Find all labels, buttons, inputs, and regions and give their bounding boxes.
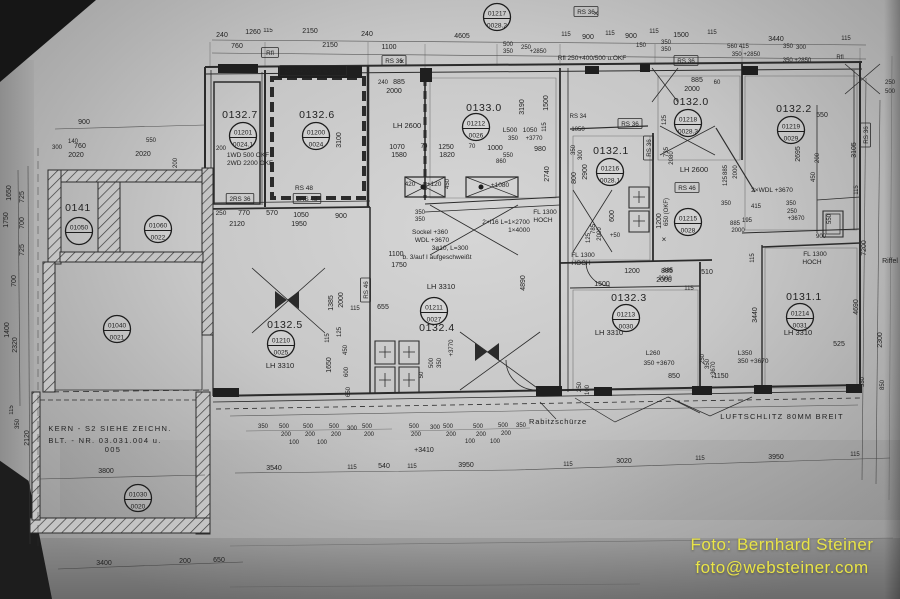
dimension-label: 1500 xyxy=(543,95,550,111)
boxed-label-text: RS 36 xyxy=(577,9,595,16)
dimension-label: 115 xyxy=(407,464,417,470)
position-circle: 010600022 xyxy=(145,216,172,243)
dimension-label: 885 xyxy=(730,221,741,227)
dimension-label: 350 +3670 xyxy=(738,358,769,365)
position-circle: 012010024.1 xyxy=(230,123,257,150)
room-number: 0133.0 xyxy=(466,102,502,114)
position-circle-top: 01214 xyxy=(791,311,810,318)
dimension-label: RS 48 xyxy=(295,185,313,192)
dimension-label: 3440 xyxy=(752,307,759,323)
dimension-label: +3670 xyxy=(788,216,806,222)
dimension-label: 240 xyxy=(216,32,228,39)
dimension-label: +3410 xyxy=(414,447,434,454)
dimension-label: 2000 xyxy=(597,227,603,241)
dimension-label: 70 xyxy=(421,144,428,150)
dimension-label: 115 xyxy=(707,30,717,36)
boxed-labels: RS 36RS 36RS 36RS 36RS 36RS 36RS 46RS 46… xyxy=(226,7,870,303)
dimension-label: 2120 xyxy=(24,430,31,446)
position-circle: 012140031 xyxy=(787,304,814,331)
dimension-label: 450 xyxy=(343,344,349,355)
dimension-label: L260 xyxy=(646,350,661,357)
position-circle-top: 01215 xyxy=(679,216,698,223)
dimension-label: Rfl xyxy=(836,55,843,61)
boxed-label-text: 2RS 48 xyxy=(296,196,318,203)
position-circle-bottom: 0024.1 xyxy=(233,142,254,149)
position-circle-top: 01218 xyxy=(679,117,698,124)
dimension-label: 1650 xyxy=(6,185,13,201)
boxed-label: RS 36 xyxy=(861,123,871,147)
dimension-label: 900 xyxy=(582,34,594,41)
dimension-label: 2020 xyxy=(68,152,84,159)
room-number: 0132.2 xyxy=(776,103,812,115)
room-number: 0132.1 xyxy=(593,145,629,157)
dimension-label: 240 xyxy=(361,31,373,38)
dimension-label: 885 xyxy=(661,268,673,275)
dimension-label: Rfl 250+400/500 u.OKF xyxy=(558,55,627,62)
dimension-label: KERN - S2 SIEHE ZEICHN. xyxy=(48,424,171,433)
dimension-label: 2120 xyxy=(229,221,245,228)
dimension-label: 350 xyxy=(721,201,732,207)
room-number: 0141 xyxy=(65,202,91,214)
dimension-label: LH 2600 xyxy=(393,121,421,130)
dimension-label: +3670 xyxy=(711,361,717,379)
dimension-label: 115 xyxy=(542,122,548,132)
dimension-label: 200 xyxy=(411,432,422,438)
dimension-label: 005 xyxy=(105,445,121,454)
dimension-label: 3105 xyxy=(851,142,858,158)
dimension-label: 1750 xyxy=(391,262,407,269)
room-number: 0131.1 xyxy=(786,291,822,303)
dimension-label: LUFTSCHLITZ 80MM BREIT xyxy=(720,412,844,421)
dimension-label: 1200 xyxy=(656,213,663,229)
dimension-label: 115 xyxy=(649,29,659,35)
boxed-label: 2RS 48 xyxy=(293,194,321,204)
dimension-label: 200 xyxy=(173,157,179,168)
dimension-label: 195 xyxy=(742,218,753,224)
boxed-label-text: RS 36 xyxy=(863,126,870,144)
dimension-label: 500 xyxy=(303,424,314,430)
dimension-label: 200 xyxy=(179,558,191,565)
boxed-label-text: 250×400/500 u.OKF xyxy=(285,68,342,75)
dimension-label: 2WD 2200 OKF xyxy=(227,160,273,167)
dimension-label: 350 +2850 xyxy=(732,52,761,58)
dimension-label: RS 34 xyxy=(570,114,587,120)
dimension-label: 540 xyxy=(378,463,390,470)
dimension-label: 1650 xyxy=(326,357,333,373)
position-circle-bottom: 0030 xyxy=(619,324,634,331)
dimension-label: 1×4000 xyxy=(508,227,530,234)
dimension-label: 3440 xyxy=(768,36,784,43)
dimension-label: 1100 xyxy=(388,251,403,258)
dimension-label: +3770 xyxy=(449,339,455,357)
dimension-label: 3950 xyxy=(458,462,474,469)
dimension-label: 3100 xyxy=(336,132,343,148)
dimension-label: FL 1300 xyxy=(571,252,595,259)
position-circle-bottom: 0028.2 xyxy=(487,23,508,30)
dimension-label: 1820 xyxy=(439,152,455,159)
boxed-label-text: 2RS 36 xyxy=(229,196,251,203)
position-circle-top: 01212 xyxy=(467,121,486,128)
dimension-label: 1950 xyxy=(291,221,307,228)
dimension-label: 500 xyxy=(429,357,435,368)
dimension-label: 980 xyxy=(534,146,546,153)
dimension-label: 100 xyxy=(585,384,591,395)
dimension-label: 350 xyxy=(571,144,577,155)
boxed-label-text: RS 36 xyxy=(621,121,639,128)
dimension-label: 650 xyxy=(213,557,225,564)
position-circle-top: 01030 xyxy=(129,492,148,499)
dimension-label: 60 xyxy=(714,80,721,86)
dimension-label: 300 xyxy=(796,45,807,51)
boxed-label-text: RS 46 xyxy=(678,185,696,192)
dimension-label: 115 xyxy=(9,405,15,415)
dimension-label: 3950 xyxy=(768,454,784,461)
dimension-label: 115 xyxy=(854,185,860,195)
dimension-label: 2320 xyxy=(12,337,19,353)
dimension-label: 650 xyxy=(346,386,352,397)
dimension-label: 1070 xyxy=(389,144,405,151)
dimension-label: 350 +2850 xyxy=(783,58,812,64)
dimension-label: 1500 xyxy=(594,281,610,288)
room-number: 0132.0 xyxy=(673,96,709,108)
dimension-label: 3190 xyxy=(519,99,526,115)
position-circle: 012160028.1 xyxy=(597,159,624,186)
photo-credit-line2: foto@websteiner.com xyxy=(664,556,900,579)
position-circle-top: 01213 xyxy=(617,312,636,319)
dimension-label: 200 xyxy=(216,146,227,152)
position-circle-bottom: 0021 xyxy=(110,335,125,342)
position-circle: 012170028.2 xyxy=(484,4,511,31)
dimension-label: 500 xyxy=(409,424,420,430)
dimension-label: 500 xyxy=(498,423,509,429)
dimension-label: +3770 xyxy=(526,136,544,142)
dimension-label: 200 xyxy=(476,432,487,438)
dimension-label: 725 xyxy=(19,244,26,256)
dimension-label: 900 xyxy=(816,234,827,240)
dimension-label: 200 xyxy=(501,431,512,437)
dimension-label: 860 xyxy=(496,159,507,165)
left-block-walls xyxy=(30,148,213,546)
dimension-label: 115 xyxy=(750,253,756,263)
dimension-label: 885 xyxy=(723,164,729,175)
position-circle: 012190029 xyxy=(778,117,805,144)
dimension-label: 115 xyxy=(325,333,331,343)
dimension-label: HOCH xyxy=(533,217,552,224)
dimension-label: 2×I16 L=1×2700 xyxy=(482,219,530,226)
dimension-label: 1500 xyxy=(673,32,689,39)
position-circle-top: 01040 xyxy=(108,323,127,330)
dimension-label: 500 xyxy=(362,424,373,430)
dimension-label: 200 xyxy=(331,432,342,438)
dimension-label: BLT. - NR. 03.031.004 u. xyxy=(48,436,161,445)
dimension-label: 2000 xyxy=(731,228,745,234)
room-number-labels: 0132.70132.60133.00132.10132.00132.20132… xyxy=(65,96,822,334)
dimension-label: 650 (OKF) xyxy=(664,198,670,226)
dimension-label: 115 xyxy=(561,32,571,38)
position-circle-bottom: 0025 xyxy=(274,350,289,357)
position-circle: 010400021 xyxy=(104,316,131,343)
dimension-label: 560 415 xyxy=(727,44,749,50)
dimension-label: 350 xyxy=(786,201,797,207)
dimension-label: 2150 xyxy=(322,42,338,49)
dimension-label: 350 xyxy=(516,423,527,429)
dimension-label: 850 xyxy=(668,373,680,380)
dimension-label: Sockel +360 xyxy=(412,229,448,236)
dimension-label: +120 xyxy=(427,181,442,188)
dimension-label: 3540 xyxy=(266,465,282,472)
dimension-label: 115 xyxy=(695,456,705,462)
dimension-label: 500 xyxy=(329,424,340,430)
dimension-label: 250 xyxy=(885,80,896,86)
dimension-label: +2850 xyxy=(530,49,548,55)
dimension-label: FL 1300 xyxy=(533,209,557,216)
position-circle-top: 01201 xyxy=(234,130,253,137)
dimension-label: 770 xyxy=(238,210,250,217)
room-number: 0132.4 xyxy=(419,322,455,334)
dimension-label: 1385 xyxy=(328,295,335,311)
dimension-label: 350 xyxy=(783,44,794,50)
bowtie-symbols xyxy=(275,291,499,361)
boxed-label: RS 36 xyxy=(574,7,598,17)
position-circle-bottom: 0022 xyxy=(151,235,166,242)
dimension-label: 240 xyxy=(378,80,389,86)
dimension-label: 7200 xyxy=(861,240,868,256)
position-circle-top: 01210 xyxy=(272,338,291,345)
dimension-label: 115 xyxy=(347,465,357,471)
dimension-label: 4890 xyxy=(520,275,527,291)
dimension-label: 1050 xyxy=(571,127,585,133)
dimension-label: 2×WDL +3670 xyxy=(751,187,793,194)
dimension-label: 350 xyxy=(258,424,269,430)
dimension-label: 200 xyxy=(305,432,316,438)
photo-credit: Foto: Bernhard Steiner foto@websteiner.c… xyxy=(664,533,900,580)
dimension-label: 885 xyxy=(691,77,703,84)
dimension-label: 2695 xyxy=(795,146,802,162)
position-circle: 01050 xyxy=(66,218,93,245)
dimension-label: 115 xyxy=(350,306,360,312)
dimension-label: 3800 xyxy=(98,468,114,475)
dimension-label: 1250 xyxy=(438,144,454,151)
dimension-label: 2000 xyxy=(338,292,345,308)
position-circle: 010300020 xyxy=(125,485,152,512)
dimension-label: 570 xyxy=(266,210,278,217)
dimension-label: 450 xyxy=(811,171,817,182)
dimension-label: 550 xyxy=(827,213,833,224)
dimension-label: × xyxy=(662,235,667,244)
boxed-label: Rfl xyxy=(262,48,279,58)
position-circle-bottom: 0026 xyxy=(469,133,484,140)
boxed-label-text: RS 36 xyxy=(677,58,695,65)
dimension-label: 550 xyxy=(860,376,866,387)
dimension-label: 125 xyxy=(662,114,668,125)
dimension-label: 350 xyxy=(661,47,672,53)
position-circle-top: 01217 xyxy=(488,11,507,18)
dimension-label: 885 xyxy=(393,79,405,86)
dimension-label: 50 xyxy=(419,371,425,378)
dimension-label: b. 3/auf I aufgeschweißt xyxy=(402,254,471,261)
dimension-label: 500 xyxy=(885,89,896,95)
dimension-label: 415 xyxy=(751,204,762,210)
dimension-label: 510 xyxy=(701,269,713,276)
room-number: 0132.7 xyxy=(222,109,258,121)
dimension-label: 550 xyxy=(146,138,157,144)
dimension-label: LH 3310 xyxy=(427,282,455,291)
dimension-label: 550 xyxy=(816,112,828,119)
dimension-label: 350 xyxy=(508,136,519,142)
dimension-label: +50 xyxy=(610,233,621,239)
dimension-label: 2300 xyxy=(877,332,884,348)
position-circle: 012130030 xyxy=(613,305,640,332)
dimension-label: 1750 xyxy=(3,212,10,228)
dimension-label: 350 xyxy=(661,40,672,46)
dimension-label: 450 xyxy=(445,178,451,189)
boxed-label-text: RS 46 xyxy=(363,281,370,299)
position-circle-top: 01050 xyxy=(70,225,89,232)
position-circle-bottom: 0020 xyxy=(131,504,146,511)
dimension-label: 70 xyxy=(469,144,476,150)
dimension-label: LH 2600 xyxy=(680,165,708,174)
dimension-label: 1WD 500 OKF xyxy=(227,152,269,159)
dimension-label: FL 1300 xyxy=(803,251,827,258)
dimension-label: 200 xyxy=(364,432,375,438)
dimension-labels: 2401260115215024076021501100460511590011… xyxy=(3,9,898,567)
dimension-label: 125 xyxy=(337,326,343,337)
dimension-label: 3ø10, L=300 xyxy=(432,245,469,252)
dimension-label: 350 +3670 xyxy=(644,360,675,367)
dimension-label: 725 xyxy=(19,191,26,203)
position-circle: 012120026 xyxy=(463,114,490,141)
boxed-label-text: Rfl xyxy=(266,50,274,57)
dimension-label: 115 xyxy=(841,36,851,42)
dimension-label: 760 xyxy=(231,43,243,50)
dimension-label: 850 xyxy=(880,379,886,390)
dimension-label: 125 xyxy=(723,175,729,186)
position-circle-bottom: 0028.1 xyxy=(600,178,621,185)
dimension-label: 200 xyxy=(281,432,292,438)
dimension-label: 115 xyxy=(850,452,860,458)
position-circle-bottom: 0028 xyxy=(681,228,696,235)
dimension-label: 2000 xyxy=(733,165,739,179)
position-circle: 012000024 xyxy=(303,123,330,150)
dimension-label: 100 xyxy=(465,439,476,445)
room-number: 0132.5 xyxy=(267,319,303,331)
dimension-label: 2000 xyxy=(684,86,700,93)
position-circle-bottom: 0028.3 xyxy=(678,129,699,136)
boxed-label: RS 46 xyxy=(675,183,699,193)
dimension-label: 350 xyxy=(415,210,426,216)
position-circle-top: 01219 xyxy=(782,124,801,131)
dimension-label: 2740 xyxy=(544,166,551,182)
dimension-label: 115 xyxy=(563,462,573,468)
position-circle-bottom: 0024 xyxy=(309,142,324,149)
position-circle-bottom: 0031 xyxy=(793,323,808,330)
dimension-label: 900 xyxy=(335,213,347,220)
dimension-label: Rabitzschürze xyxy=(529,417,587,426)
dimension-label: 525 xyxy=(833,341,845,348)
dimension-label: 900 xyxy=(78,119,90,126)
dimension-label: 1200 xyxy=(624,268,640,275)
dimension-label: 100 xyxy=(490,439,501,445)
dimension-label: 1000 xyxy=(487,145,503,152)
position-circle: 012110027 xyxy=(421,298,448,325)
dimension-label: 3020 xyxy=(616,458,632,465)
room-number: 0132.6 xyxy=(299,109,335,121)
dimension-label: 350 xyxy=(15,418,21,429)
position-circle-bottom: 0029 xyxy=(784,136,799,143)
dimension-label: 300 xyxy=(578,149,584,160)
dimension-label: 250 xyxy=(577,381,583,392)
position-circle-top: 01216 xyxy=(601,166,620,173)
dimension-label: HOCH xyxy=(571,260,590,267)
dimension-label: +1080 xyxy=(491,182,510,189)
dimension-label: 500 xyxy=(473,424,484,430)
dimension-label: 600 xyxy=(344,366,350,377)
dimension-label: 1050 xyxy=(523,127,538,134)
dimension-label: 350 xyxy=(503,49,514,55)
position-circle-top: 01060 xyxy=(149,223,168,230)
dimension-label: 300 xyxy=(52,145,63,151)
dimension-label: 2150 xyxy=(302,28,318,35)
photo-credit-line1: Foto: Bernhard Steiner xyxy=(664,533,900,556)
dimension-label: 700 xyxy=(19,217,26,229)
dimension-label: L500 xyxy=(503,127,518,134)
position-circle: 012100025 xyxy=(268,331,295,358)
dimension-label: Riffel xyxy=(882,258,898,265)
dimension-label: 2900 xyxy=(582,164,589,180)
dimension-label: WDL +3670 xyxy=(415,237,450,244)
dimension-label: 2080 xyxy=(669,151,675,165)
dimension-label: 500 xyxy=(279,424,290,430)
dimension-label: 1050 xyxy=(293,212,309,219)
boxed-label-text: RS 36 xyxy=(385,58,403,65)
dimension-label: 500 xyxy=(503,42,514,48)
dimension-label: 4605 xyxy=(454,33,470,40)
dimension-label: 115 xyxy=(684,286,694,292)
dimension-label: 115 xyxy=(263,28,273,34)
room-number: 0132.3 xyxy=(611,292,647,304)
dimension-label: 655 xyxy=(377,304,389,311)
floorplan-photo: 2401260115215024076021501100460511590011… xyxy=(0,0,900,599)
dimension-label: 420 xyxy=(405,181,416,188)
dimension-label: 760 xyxy=(74,143,86,150)
dimension-label: 2020 xyxy=(135,151,151,158)
position-circle: 012150028 xyxy=(675,209,702,236)
dimension-label: 350 xyxy=(437,357,443,368)
dimension-label: 100 xyxy=(289,440,300,446)
dimension-label: 250 xyxy=(216,210,227,217)
position-circle-top: 01211 xyxy=(425,305,443,312)
boxed-label: RS 36 xyxy=(644,136,654,160)
dimension-label: 200 xyxy=(446,432,457,438)
dimension-label: 300 xyxy=(430,425,441,431)
dimension-label: 2000 xyxy=(386,88,402,95)
dimension-label: 800 xyxy=(571,172,578,184)
position-circle-top: 01200 xyxy=(307,130,326,137)
dimension-label: 1260 xyxy=(245,29,261,36)
boxed-label: RS 46 xyxy=(361,278,371,302)
dimension-label: 1580 xyxy=(391,152,407,159)
dimension-label: LH 3310 xyxy=(266,361,294,370)
dimension-label: 350 xyxy=(415,217,426,223)
dimension-label: 900 xyxy=(625,33,637,40)
dimension-label: 115 xyxy=(605,31,615,37)
dimension-label: 4690 xyxy=(853,299,860,315)
dimension-label: 1400 xyxy=(4,322,11,338)
dimension-label: 700 xyxy=(11,275,18,287)
dimension-label: 500 xyxy=(443,424,454,430)
boxed-label-text: RS 36 xyxy=(646,139,653,157)
dimension-label: 1100 xyxy=(381,44,396,51)
